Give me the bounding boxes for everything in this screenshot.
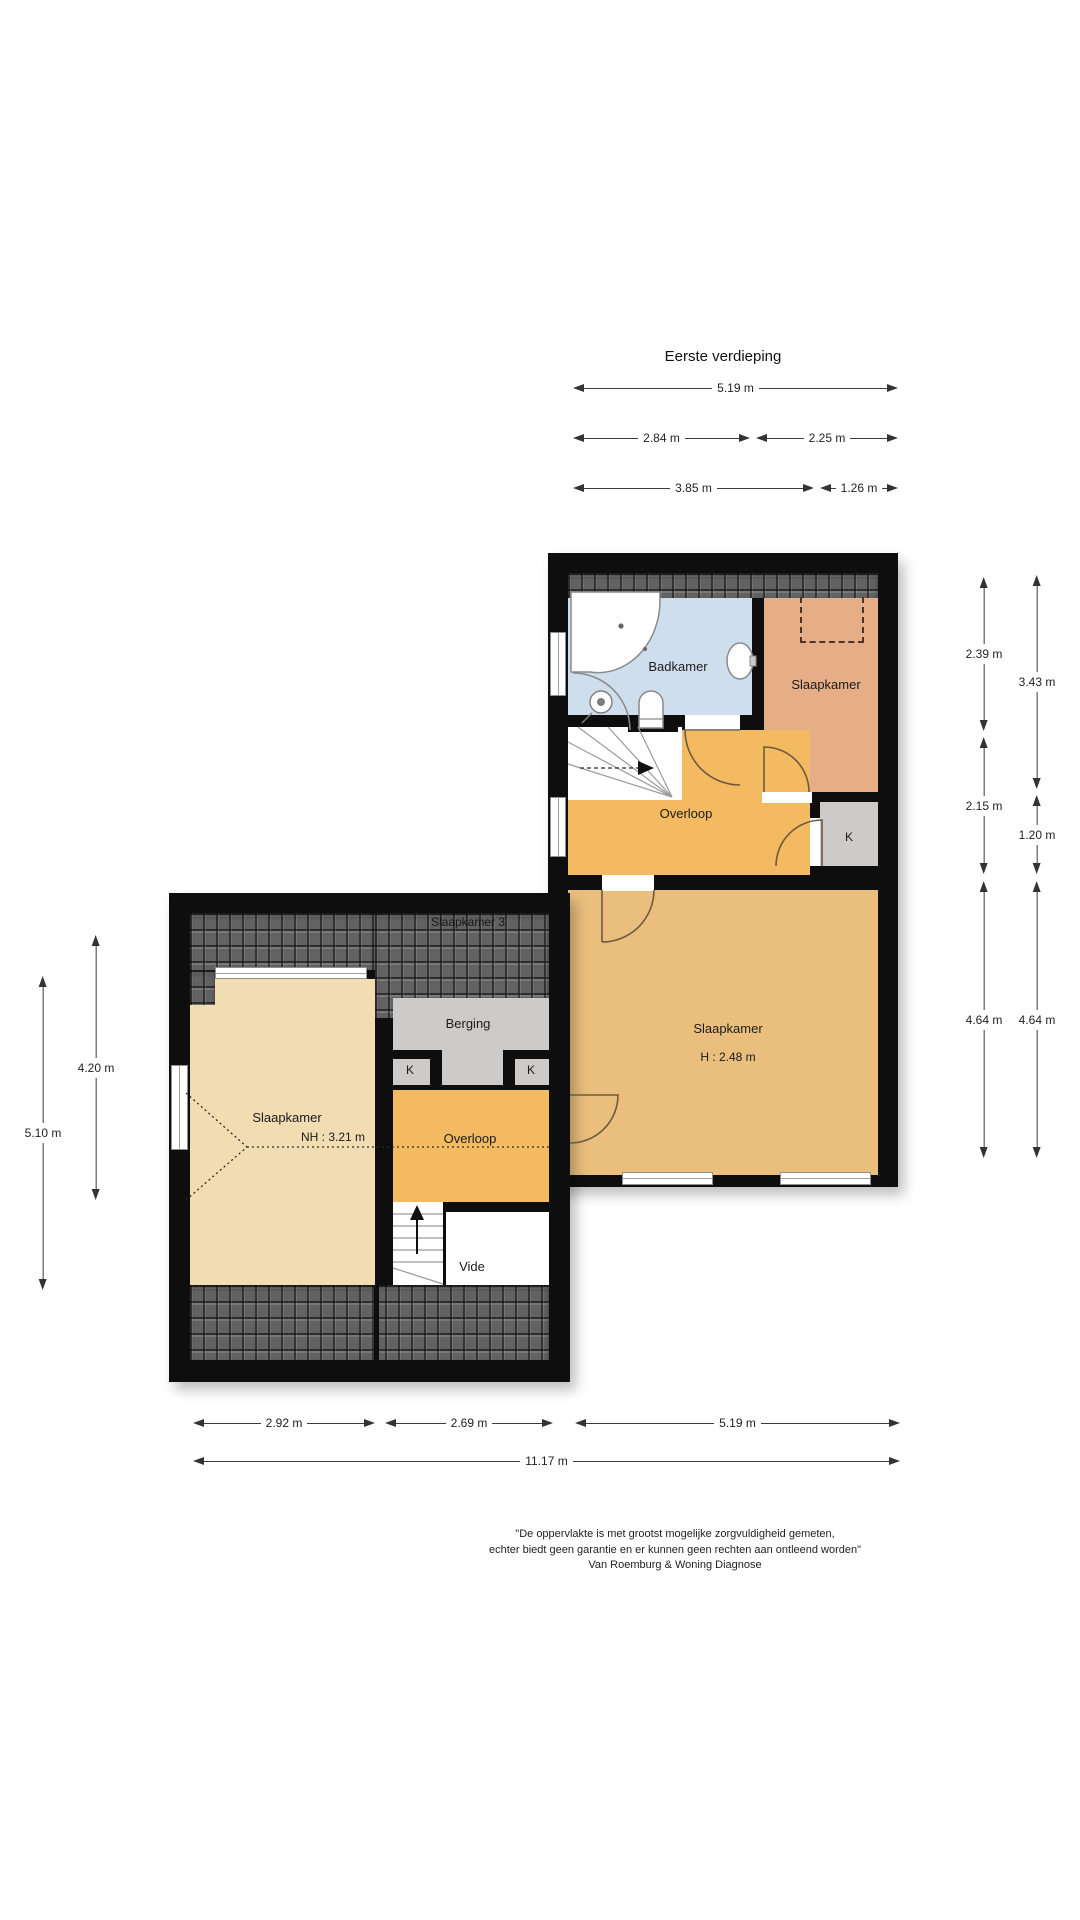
label-ridge-height: NH : 3.21 m — [301, 1130, 365, 1144]
label-closet-left: K — [406, 1063, 414, 1077]
dim-top-2-84: 2.84 m — [573, 430, 750, 446]
label-slaapkamer-main-height: H : 2.48 m — [700, 1050, 755, 1064]
dim-right-2-39: 2.39 m — [966, 577, 1003, 731]
dim-bottom-2-92: 2.92 m — [193, 1415, 375, 1431]
dim-top-total: 5.19 m — [573, 380, 898, 396]
label-badkamer: Badkamer — [648, 659, 707, 674]
stair-cut-line — [393, 1268, 443, 1284]
bathtub-tap — [643, 647, 647, 651]
stair-direction-arrow — [638, 761, 654, 775]
label-closet-right: K — [527, 1063, 535, 1077]
floorplan-annotations — [0, 0, 1080, 1920]
door-slaapkamer-top — [764, 747, 809, 792]
sink — [727, 643, 753, 679]
bathtub-drain — [618, 623, 623, 628]
disclaimer-line-1: "De oppervlakte is met grootst mogelijke… — [375, 1527, 975, 1543]
dim-right-3-43: 3.43 m — [1019, 575, 1056, 789]
disclaimer: "De oppervlakte is met grootst mogelijke… — [375, 1527, 975, 1574]
door-slaapkamer-main-top — [602, 890, 654, 942]
shower-head-center — [597, 698, 605, 706]
bathtub — [571, 592, 660, 673]
label-vide: Vide — [459, 1259, 485, 1274]
label-overloop-left: Overloop — [444, 1131, 497, 1146]
label-slaapkamer-top: Slaapkamer — [791, 677, 860, 692]
disclaimer-line-2: echter biedt geen garantie en er kunnen … — [375, 1543, 975, 1559]
dim-right-1-20: 1.20 m — [1019, 795, 1056, 874]
dim-bottom-5-19: 5.19 m — [575, 1415, 900, 1431]
ridge-line-lower — [186, 1147, 247, 1200]
stair-up-arrow — [410, 1205, 424, 1220]
dim-left-4-20: 4.20 m — [78, 935, 115, 1200]
dim-left-5-10: 5.10 m — [25, 976, 62, 1290]
dim-top-1-26: 1.26 m — [820, 480, 898, 496]
label-berging: Berging — [446, 1016, 491, 1031]
dim-top-3-85: 3.85 m — [573, 480, 814, 496]
label-closet-right-wing: K — [845, 830, 853, 844]
label-slaapkamer3: Slaapkamer 3 — [431, 915, 505, 929]
label-slaapkamer-main: Slaapkamer — [693, 1021, 762, 1036]
sink-tap — [750, 656, 756, 666]
dim-right-4-64-outer: 4.64 m — [1019, 881, 1056, 1158]
dim-bottom-total: 11.17 m — [193, 1453, 900, 1469]
shower-arm — [582, 713, 592, 723]
stair-tread — [578, 727, 672, 797]
door-closet — [776, 820, 822, 866]
label-slaapkamer-left: Slaapkamer — [252, 1110, 321, 1125]
dim-right-2-15: 2.15 m — [966, 737, 1003, 874]
floorplan-page: Eerste verdieping — [0, 0, 1080, 1920]
stair-tread — [638, 727, 672, 797]
dim-bottom-2-69: 2.69 m — [385, 1415, 553, 1431]
toilet — [639, 691, 663, 728]
door-slaapkamer-main-left — [570, 1095, 618, 1143]
dim-right-4-64-inner: 4.64 m — [966, 881, 1003, 1158]
label-overloop-right: Overloop — [660, 806, 713, 821]
door-badkamer — [685, 730, 740, 785]
dim-top-2-25: 2.25 m — [756, 430, 898, 446]
ridge-line-upper — [186, 1093, 247, 1147]
disclaimer-line-3: Van Roemburg & Woning Diagnose — [375, 1558, 975, 1574]
